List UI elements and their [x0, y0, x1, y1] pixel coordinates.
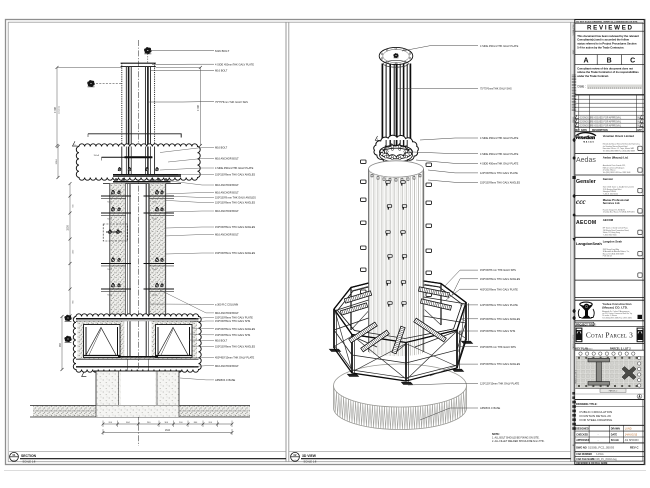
svg-text:ccc: ccc: [576, 198, 586, 206]
svg-text:M16 BOLT: M16 BOLT: [215, 146, 228, 150]
svg-text:A350B R.C BASE: A350B R.C BASE: [215, 378, 236, 382]
svg-text:under the Trade Contract.: under the Trade Contract.: [577, 74, 609, 78]
svg-text:AS SHOWN: AS SHOWN: [625, 439, 639, 442]
svg-text:120*150*8mm THK GALV PLATE: 120*150*8mm THK GALV PLATE: [480, 303, 518, 307]
svg-text:Date :: Date :: [578, 84, 587, 88]
svg-text:-: -: [295, 458, 296, 461]
svg-text:M16 ANCHOR BOLT: M16 ANCHOR BOLT: [215, 233, 239, 237]
svg-text:75x50: 75x50: [107, 219, 112, 221]
svg-text:3D VIEW: 3D VIEW: [302, 454, 317, 458]
svg-text:1798: 1798: [196, 105, 200, 111]
svg-text:150*150*8mm THK GALV ANGLES: 150*150*8mm THK GALV ANGLES: [480, 180, 520, 184]
svg-text:150*150*8mm THK GALV ANGLES: 150*150*8mm THK GALV ANGLES: [215, 251, 255, 255]
svg-text:150*150*8mm THK GALV SHS: 150*150*8mm THK GALV SHS: [215, 333, 250, 337]
svg-text:150*150*8 mm THK GALV ANGLES: 150*150*8 mm THK GALV ANGLES: [215, 196, 256, 200]
svg-text:relieve the Trade Contractor o: relieve the Trade Contractor of its resp…: [577, 70, 639, 74]
svg-text:-: -: [598, 439, 599, 442]
svg-text:CAD NUMBER: CAD NUMBER: [576, 453, 592, 456]
svg-text:SK: SK: [637, 121, 641, 123]
svg-text:M16 BOLT: M16 BOLT: [215, 49, 229, 53]
svg-text:LangdonSeah: LangdonSeah: [576, 241, 602, 246]
svg-text:REV C: REV C: [630, 446, 639, 450]
svg-text:5150B_PC2_05093: 5150B_PC2_05093: [588, 446, 615, 450]
svg-text:a 300 R.C COLUMN: a 300 R.C COLUMN: [215, 302, 238, 306]
svg-text:75*75*6mmTHK GALV SHS: 75*75*6mmTHK GALV SHS: [480, 87, 512, 91]
svg-text:150*150*8mm THK GALV ANGLES: 150*150*8mm THK GALV ANGLES: [480, 277, 520, 281]
svg-text:SECTION: SECTION: [21, 454, 37, 458]
svg-text:150*150*8mm THK GALV ANGLES: 150*150*8mm THK GALV ANGLES: [215, 173, 255, 177]
svg-text:Tel: (853) 2875 3380 Fax: 287: Tel: (853) 2875 3380 Fax: 2875 3381: [602, 317, 631, 319]
svg-text:Consultants(s) and is accorded: Consultants(s) and is accorded the follo…: [577, 38, 630, 42]
svg-text:Aedas (Macau) Ltd.: Aedas (Macau) Ltd.: [603, 156, 629, 160]
svg-text:75x50: 75x50: [107, 202, 112, 204]
svg-text:120*150*8mm THK GALV PLATE: 120*150*8mm THK GALV PLATE: [480, 171, 518, 175]
svg-text:-: -: [598, 433, 599, 436]
svg-text:M16 ANCHOR BOLT: M16 ANCHOR BOLT: [215, 311, 239, 315]
svg-text:PARCEL 2: PARCEL 2: [609, 390, 618, 393]
svg-text:13 andar A-C, Macau Tel: (85: 13 andar A-C, Macau Tel: (853) 2878 6281: [603, 211, 635, 214]
svg-text:RE-ISSUED FOR APPROVAL: RE-ISSUED FOR APPROVAL: [590, 124, 621, 127]
svg-text:75x50: 75x50: [152, 202, 157, 204]
svg-text:DRAWN: DRAWN: [611, 428, 620, 431]
svg-text:T +86 21 6103 6100: T +86 21 6103 6100: [603, 193, 618, 195]
svg-text:CAD FILE NAME: CAD FILE NAME: [576, 458, 594, 461]
svg-text:DRAWING TITLE:: DRAWING TITLE:: [576, 402, 597, 406]
svg-text:75x50: 75x50: [152, 295, 157, 297]
svg-text:This document has been reviewe: This document has been reviewed by the r…: [577, 34, 639, 38]
svg-text:2644: 2644: [165, 430, 171, 432]
svg-text:PARCEL 3, LOT 1: PARCEL 3, LOT 1: [575, 370, 578, 384]
svg-text:status referred to in Projec: status referred to in Project Procedures…: [577, 42, 637, 46]
svg-text:Tel: (853) 2833 1023 Fax: 283: Tel: (853) 2833 1023 Fax: 2833 1044: [603, 172, 631, 174]
svg-text:MACAO: MACAO: [583, 141, 594, 144]
svg-text:RE-ISSUED FOR APPROVAL: RE-ISSUED FOR APPROVAL: [590, 120, 621, 123]
svg-text:5150B_PC_05093.dwg: 5150B_PC_05093.dwg: [593, 459, 617, 461]
svg-text:150*150*8mm THK GALV ANGLES: 150*150*8mm THK GALV ANGLES: [480, 362, 520, 366]
svg-text:4 SIDE 450mmTHK GALV PLATE: 4 SIDE 450mmTHK GALV PLATE: [480, 136, 519, 140]
svg-text:APP: APP: [637, 129, 642, 132]
svg-text:3200: 3200: [67, 225, 70, 231]
svg-text:150*150*8mm THK GALV ANGLES: 150*150*8mm THK GALV ANGLES: [215, 225, 255, 229]
svg-text:Cotai Parcel 3: Cotai Parcel 3: [586, 331, 633, 340]
svg-text:RE-ISSUED FOR APPROVAL: RE-ISSUED FOR APPROVAL: [590, 116, 621, 119]
svg-text:LUND: LUND: [625, 428, 632, 431]
svg-text:(varies): (varies): [57, 106, 60, 114]
svg-text:75x50: 75x50: [152, 219, 157, 221]
svg-text:DO NOT SCALE DRAWING. VERIFY A: DO NOT SCALE DRAWING. VERIFY ALL DIMENSI…: [576, 20, 638, 23]
svg-text:Venetian Orient Limited: Venetian Orient Limited: [603, 134, 635, 138]
svg-text:75x50: 75x50: [107, 295, 112, 297]
svg-text:150*150*8mm THK GALV ANGLES: 150*150*8mm THK GALV ANGLES: [215, 345, 255, 349]
svg-text:AECOM: AECOM: [576, 220, 596, 226]
svg-text:SK: SK: [637, 117, 641, 119]
svg-text:150*150*8mm THK GALV ANGLES: 150*150*8mm THK GALV ANGLES: [480, 317, 520, 321]
svg-text:Gensler: Gensler: [576, 179, 596, 185]
svg-text:PARCEL 3, LOT 2: PARCEL 3, LOT 2: [610, 347, 631, 350]
svg-text:4 SIDE 450mmTHK GALV PLATE: 4 SIDE 450mmTHK GALV PLATE: [215, 166, 254, 170]
svg-text:M16 ANCHOR BOLT: M16 ANCHOR BOLT: [215, 183, 239, 187]
svg-text:A350B R.C BASE: A350B R.C BASE: [480, 406, 501, 410]
svg-text:M16 ANCHOR BOLT: M16 ANCHOR BOLT: [215, 157, 239, 161]
svg-text:B: B: [607, 57, 612, 64]
svg-text:4 SIDE 450mmTHK GALV PLATE: 4 SIDE 450mmTHK GALV PLATE: [480, 152, 519, 156]
svg-text:SCALE 1:8: SCALE 1:8: [304, 459, 317, 463]
svg-text:F 28 333 23: F 28 333 23: [603, 256, 612, 258]
svg-text:2. ALL FILLET WELDED SHOULD BE: 2. ALL FILLET WELDED SHOULD BE 6mm THK.: [492, 440, 545, 443]
svg-text:3-DWG: 3-DWG: [596, 454, 604, 456]
svg-text:M16 ANCHOR BOLT: M16 ANCHOR BOLT: [215, 364, 239, 368]
svg-text:4 SIDE 450mmTHK GALV PLATE: 4 SIDE 450mmTHK GALV PLATE: [480, 162, 519, 166]
svg-text:APPROVED: APPROVED: [576, 439, 590, 442]
svg-text:Consultant review of this docu: Consultant review of this document does …: [577, 66, 633, 70]
svg-text:450*450*10mm THK GALV PLATE: 450*450*10mm THK GALV PLATE: [215, 356, 255, 360]
svg-text:T +852 3922 9000: T +852 3922 9000: [603, 234, 617, 236]
svg-text:DATE: DATE: [581, 129, 588, 132]
svg-text:150*150*8mm THK GALV SHS: 150*150*8mm THK GALV SHS: [215, 319, 250, 323]
svg-text:M16 BOLT: M16 BOLT: [215, 339, 228, 343]
svg-text:150*150*8mm THK GALV PLATE: 150*150*8mm THK GALV PLATE: [215, 316, 253, 320]
svg-text:Gensler: Gensler: [603, 177, 614, 181]
svg-text:4 SIDE 450mmTHK GALV PLATE: 4 SIDE 450mmTHK GALV PLATE: [480, 44, 519, 48]
svg-text:75*75*6mm THK GALV SHS: 75*75*6mm THK GALV SHS: [215, 100, 248, 104]
svg-text:AECOM: AECOM: [603, 218, 614, 222]
svg-text:(Macau) CO. LTD.: (Macau) CO. LTD.: [602, 306, 628, 310]
svg-text:150*150*8mm THK GALV ANGLES: 150*150*8mm THK GALV ANGLES: [215, 327, 255, 331]
svg-text:400*200*8mm THK GALV PLATE: 400*200*8mm THK GALV PLATE: [480, 287, 518, 291]
svg-text:150*150*8mm THK GALV SHS: 150*150*8mm THK GALV SHS: [480, 329, 515, 333]
svg-text:Tel: (853) 2882 8888 Fax: (8: Tel: (853) 2882 8888 Fax: (853) 2882 888…: [603, 150, 635, 152]
svg-text:DWG NO: DWG NO: [576, 447, 587, 450]
svg-text:C: C: [630, 57, 635, 64]
svg-text:Venetian: Venetian: [575, 135, 595, 141]
svg-text:4 SIDE 450mmTHK GALV PLATE: 4 SIDE 450mmTHK GALV PLATE: [215, 62, 254, 66]
svg-text:Langdon Seah: Langdon Seah: [603, 240, 623, 244]
svg-text:DATE: DATE: [611, 433, 618, 436]
svg-text:A: A: [583, 57, 588, 64]
svg-text:Aedas: Aedas: [576, 157, 596, 164]
svg-text:150x8: 150x8: [94, 155, 100, 157]
svg-text:R E V I E W E D: R E V I E W E D: [587, 24, 633, 31]
svg-text:14/AUG/15: 14/AUG/15: [625, 433, 638, 436]
svg-text:REV: REV: [575, 130, 580, 132]
svg-text:M16 ANCHOR BOLT: M16 ANCHOR BOLT: [215, 191, 239, 195]
svg-text:150*150*8 mm THK GALV SHS: 150*150*8 mm THK GALV SHS: [480, 345, 516, 349]
svg-text:Services Ltd.: Services Ltd.: [603, 201, 621, 205]
svg-text:DESCRIPTION: DESCRIPTION: [592, 130, 608, 132]
svg-text:-: -: [14, 458, 15, 461]
svg-text:5.4 for action by the Trade Co: 5.4 for action by the Trade Contractor.: [577, 46, 624, 50]
svg-text:994: 994: [59, 342, 62, 347]
svg-text:DESIGNED: DESIGNED: [576, 428, 589, 431]
svg-text:CHECKED: CHECKED: [576, 433, 588, 436]
svg-text:1294: 1294: [56, 159, 58, 165]
svg-text:150*150*8 mm THK GALV SHS: 150*150*8 mm THK GALV SHS: [480, 268, 516, 272]
svg-text:M16 ANCHOR BOLT: M16 ANCHOR BOLT: [215, 209, 239, 213]
svg-text:120*120*10mm THK GALV PLATE: 120*120*10mm THK GALV PLATE: [480, 381, 520, 385]
svg-text:150*150*8mm THK GALV ANGLES: 150*150*8mm THK GALV ANGLES: [215, 201, 255, 205]
svg-text:SCALE: SCALE: [611, 439, 620, 442]
svg-text:REFERENCE ON FILE NAME: REFERENCE ON FILE NAME: [576, 462, 608, 465]
svg-text:75x50: 75x50: [107, 269, 112, 271]
svg-text:SCALE 1:8: SCALE 1:8: [23, 459, 36, 463]
svg-text:FOR STEEL DRAWING: FOR STEEL DRAWING: [580, 418, 613, 422]
svg-text:M16 BOLT: M16 BOLT: [215, 69, 228, 73]
svg-text:75x50: 75x50: [152, 269, 157, 271]
svg-text:1798: 1798: [53, 107, 57, 113]
